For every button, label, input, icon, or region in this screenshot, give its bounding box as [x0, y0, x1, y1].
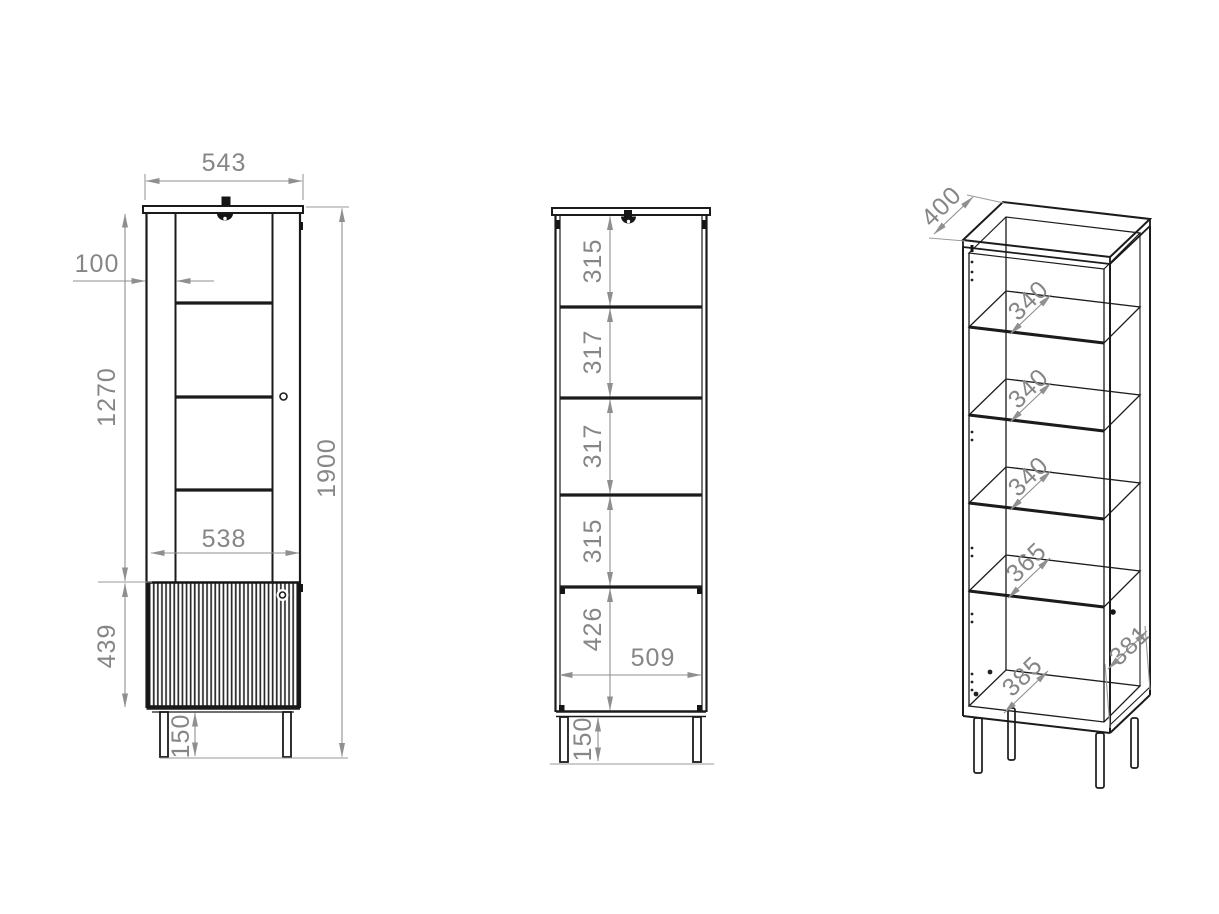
- dim-leg-height: 150: [167, 714, 195, 759]
- dim-compartment-2: 317: [579, 330, 607, 375]
- bottom-right-inner: [1110, 687, 1150, 725]
- internal-view: 315 317 317 315 426 509 150: [550, 208, 714, 764]
- dim-top-depth: 400: [916, 181, 967, 232]
- dim-shelf-3-depth: 340: [1003, 451, 1055, 502]
- shelf-bracket-right: [697, 589, 702, 595]
- hinge-tick-top: [300, 222, 304, 230]
- shelves: [969, 291, 1140, 607]
- dim-leg-height: 150: [569, 717, 597, 762]
- dim-lower-door-height: 439: [93, 624, 121, 669]
- top-board: [143, 206, 303, 213]
- bottom-bracket-right: [697, 705, 703, 711]
- hinge-plate-left: [557, 220, 560, 229]
- hinge-pin-icon: [624, 210, 632, 217]
- dim-compartment-3: 317: [579, 424, 607, 469]
- left-leg: [560, 717, 568, 762]
- hinge-plate: [971, 245, 974, 252]
- fluted-door: [149, 583, 299, 707]
- dim-compartment-5: 426: [579, 607, 607, 652]
- dim-door-width: 538: [202, 525, 247, 553]
- bottom-front-edge: [963, 716, 1110, 733]
- hinge-cup-hole: [223, 217, 227, 221]
- dim-overall-height: 1900: [313, 438, 341, 498]
- dim-glass-door-height: 1270: [93, 367, 121, 427]
- front-view: 543 100 1270 439 538 1900 150: [73, 149, 349, 759]
- dim-shelf-2-depth: 340: [1003, 363, 1055, 414]
- shelf-pin-holes: [971, 261, 993, 697]
- dim-shelf-4-depth: 365: [1001, 537, 1053, 588]
- dim-inner-width: 509: [631, 644, 676, 672]
- dim-compartment-4: 315: [579, 519, 607, 564]
- hinge-plate-right: [703, 220, 706, 229]
- bottom-face: [969, 670, 1140, 722]
- dim-stile-width: 100: [75, 250, 120, 278]
- dim-compartment-1: 315: [579, 239, 607, 284]
- perspective-view: 400 340 340 340 365 385 381: [916, 181, 1156, 788]
- hinge-pin-icon: [222, 197, 231, 206]
- hinge-cup-hole: [627, 220, 630, 223]
- right-leg: [693, 717, 701, 762]
- dim-overall-width: 543: [202, 149, 247, 177]
- glass-door-knob: [280, 393, 287, 400]
- technical-drawing-canvas: 543 100 1270 439 538 1900 150: [0, 0, 1219, 914]
- door-mount-hole: [1110, 609, 1116, 615]
- knob-halo: [277, 589, 289, 601]
- bottom-right-edge: [1110, 695, 1150, 733]
- bottom-bracket-left: [559, 705, 565, 711]
- right-leg: [283, 712, 291, 757]
- dim-shelf-1-depth: 340: [1003, 275, 1055, 326]
- cabinet-dimension-drawing: 543 100 1270 439 538 1900 150: [0, 0, 1219, 914]
- shelf-bracket-left: [560, 589, 565, 595]
- top-face: [963, 202, 1150, 257]
- dim-bottom-depth: 385: [997, 651, 1049, 702]
- hinge-tick-bottom: [300, 584, 304, 592]
